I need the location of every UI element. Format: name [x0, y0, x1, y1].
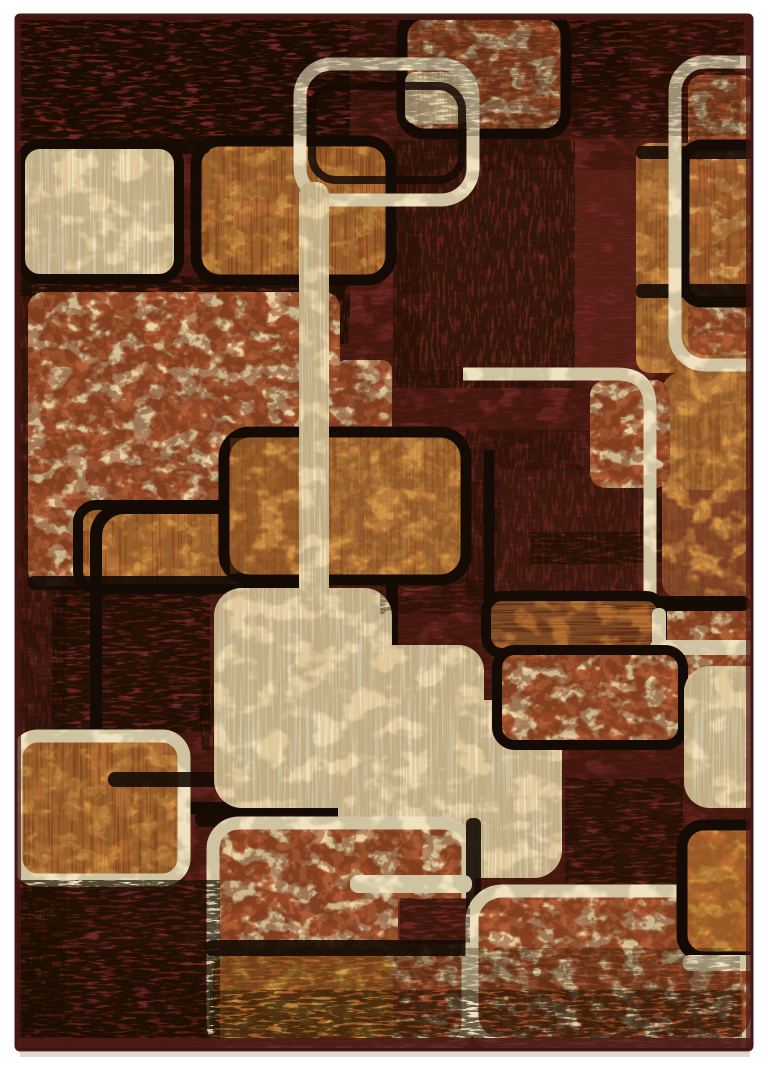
rug-image — [0, 0, 768, 1068]
rug-shadow — [20, 1052, 750, 1057]
grunge-over — [14, 14, 754, 1051]
rug-weave — [10, 9, 768, 1056]
rug-product-photo — [0, 0, 768, 1068]
